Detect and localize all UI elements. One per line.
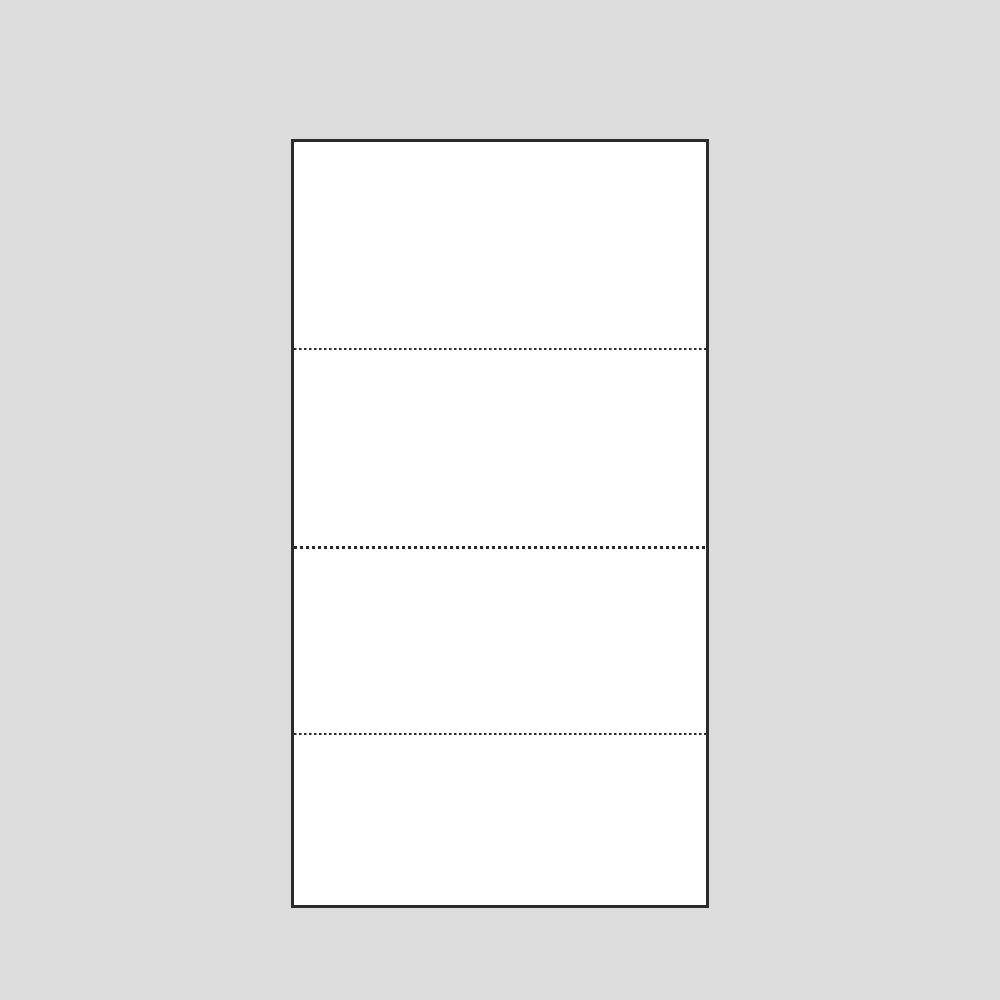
sheet-section-4 <box>294 735 706 905</box>
sheet-section-2 <box>294 350 706 546</box>
sheet-section-1 <box>294 142 706 348</box>
sheet-section-3 <box>294 549 706 733</box>
paper-sheet <box>291 139 709 908</box>
workspace-background <box>0 0 1000 1000</box>
